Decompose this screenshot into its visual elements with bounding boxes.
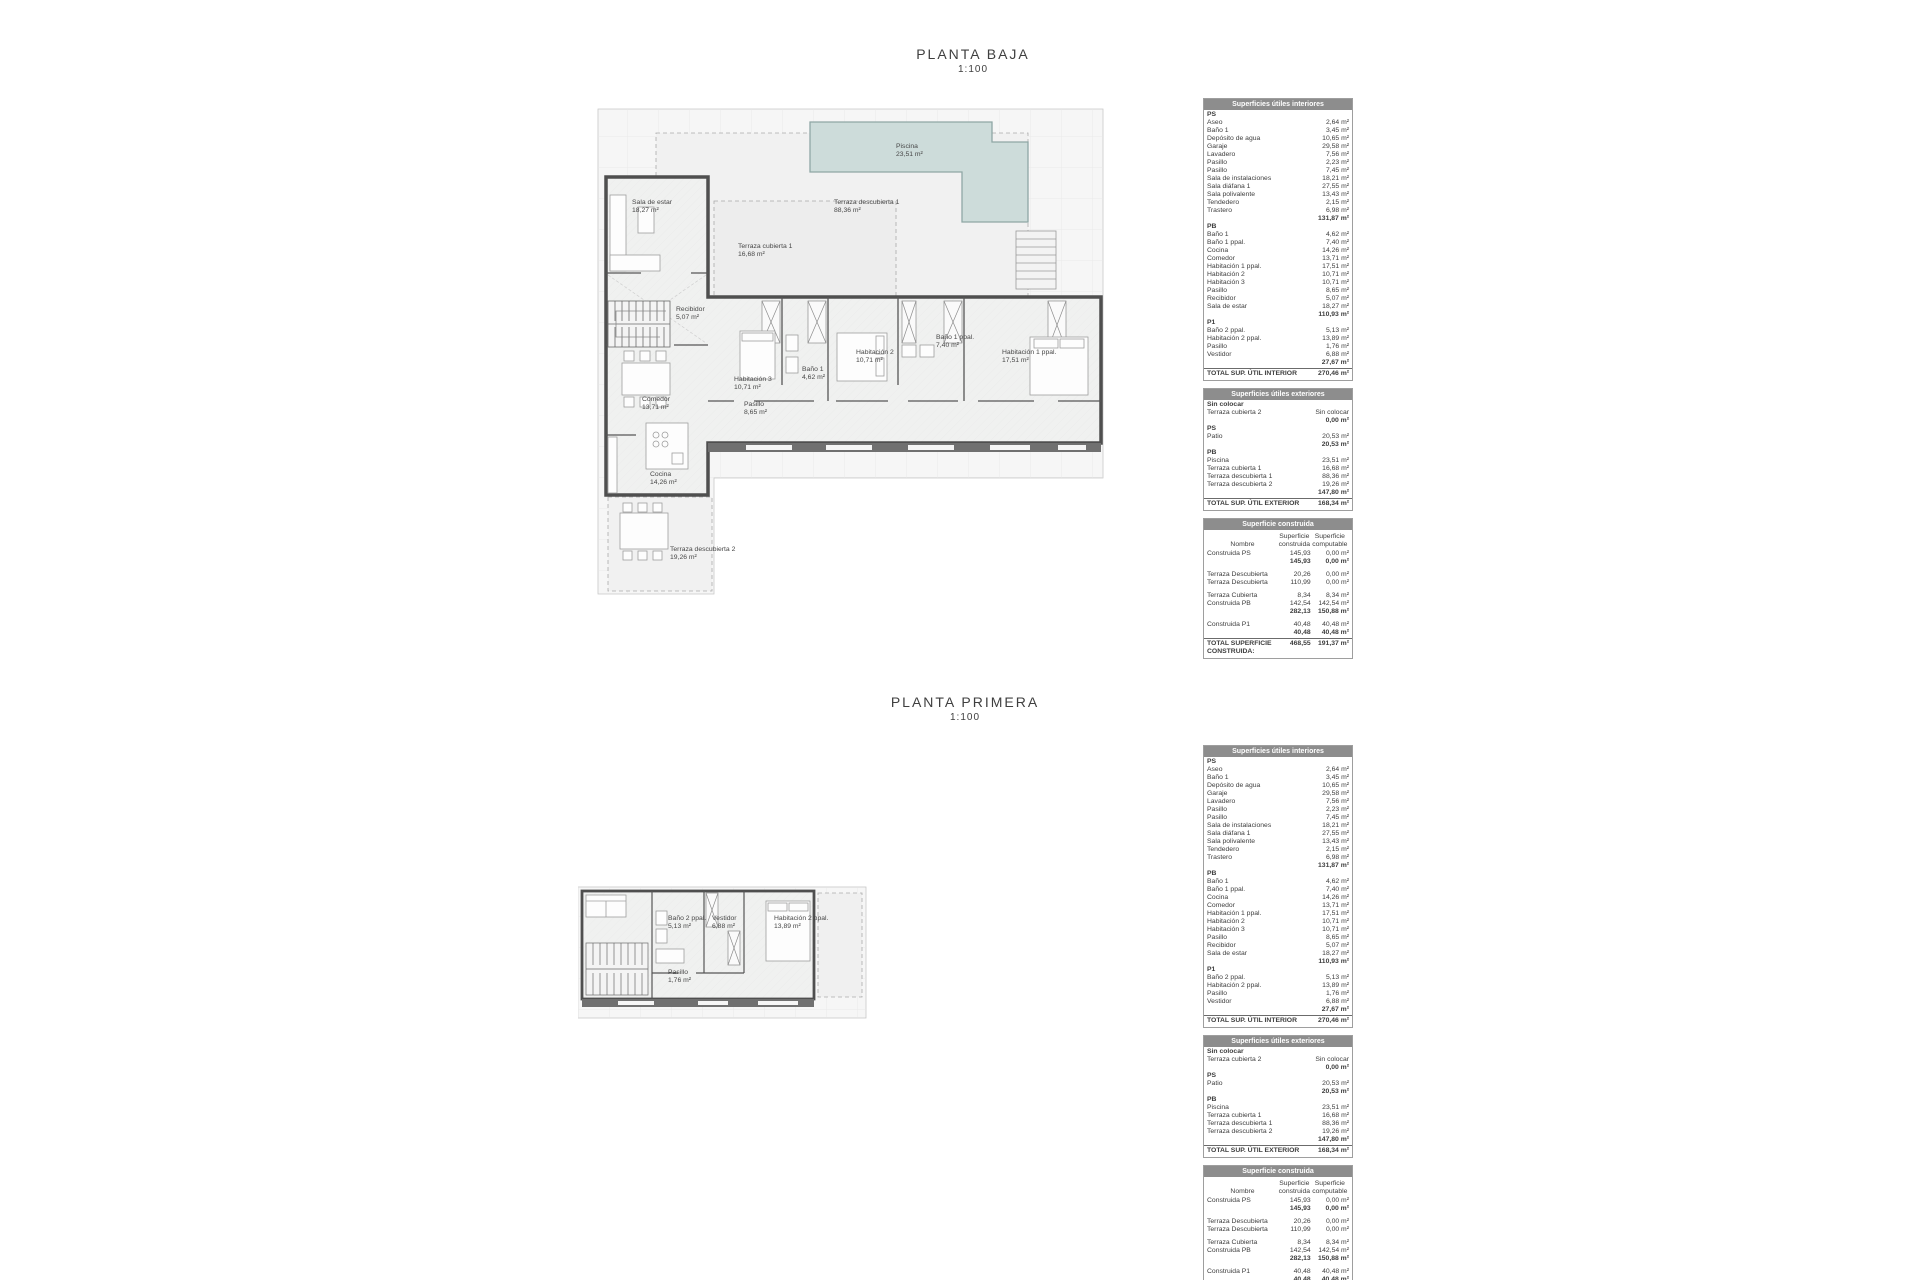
section-subtotal: 20,53 m² [1204,1088,1352,1096]
row-value: 2,15 m² [1326,199,1349,207]
table-row: Habitación 210,71 m² [1204,271,1352,279]
row-value: 10,65 m² [1322,782,1349,790]
table-row: Construida PS145,930,00 m² [1204,1197,1352,1205]
room-name: Cocina [650,471,677,479]
row-label: Tendedero [1207,199,1239,207]
row-value: 18,21 m² [1322,175,1349,183]
row-value: 17,51 m² [1322,263,1349,271]
row-value: 27,55 m² [1322,830,1349,838]
table-body: Sin colocarTerraza cubierta 2Sin colocar… [1204,1047,1352,1157]
room-area: 19,26 m² [670,554,735,562]
row-value: 20,53 m² [1322,1080,1349,1088]
table-row: Piscina23,51 m² [1204,1104,1352,1112]
row-value: 88,36 m² [1322,1120,1349,1128]
table-row: Terraza cubierta 2Sin colocar [1204,409,1352,417]
table-row: Terraza Descubierta20,260,00 m² [1204,571,1352,579]
section-header: PB [1204,223,1352,231]
scale-label: 1:100 [863,64,1083,75]
table-row: Sala polivalente13,43 m² [1204,191,1352,199]
cell-name [1207,1276,1278,1280]
table-row: Habitación 2 ppal.13,89 m² [1204,982,1352,990]
table-row: Pasillo7,45 m² [1204,167,1352,175]
row-value: 19,26 m² [1322,481,1349,489]
section-subtotal: 0,00 m² [1204,1064,1352,1072]
table-row: Baño 13,45 m² [1204,127,1352,135]
row-label: Sala de estar [1207,303,1247,311]
row-value: 18,21 m² [1322,822,1349,830]
cell-construida: 110,99 [1278,579,1311,587]
room-label: Comedor13,71 m² [642,396,670,411]
cell-name: Construida PB [1207,600,1278,608]
cell-construida: 8,34 [1278,592,1311,600]
cell-construida: 40,48 [1278,1268,1311,1276]
table-superficie-construida: Superficie construidaNombreSuperficie co… [1203,1165,1353,1280]
section-subtotal: 147,80 m² [1204,1136,1352,1144]
row-label: TOTAL SUP. ÚTIL EXTERIOR [1207,500,1299,508]
cell-name [1207,608,1278,616]
row-value: Sin colocar [1315,409,1349,417]
section-header: PB [1204,870,1352,878]
room-name: Terraza descubierta 1 [834,199,899,207]
table-body: NombreSuperficie construidaSuperficie co… [1204,530,1352,658]
cell-construida: 40,48 [1278,621,1311,629]
row-label: Piscina [1207,1104,1229,1112]
cell-computable: 0,00 m² [1311,579,1349,587]
table-row: Baño 13,45 m² [1204,774,1352,782]
table-row: Cocina14,26 m² [1204,894,1352,902]
table-total: TOTAL SUP. ÚTIL EXTERIOR168,34 m² [1204,1145,1352,1155]
row-label: Pasillo [1207,814,1227,822]
row-value: 6,98 m² [1326,854,1349,862]
row-value: 147,80 m² [1318,1136,1349,1144]
room-name: Habitación 1 ppal. [1002,349,1056,357]
section-subtotal: 27,67 m² [1204,359,1352,367]
row-label: Sala diáfana 1 [1207,830,1250,838]
cell-computable: Superficie computable [1311,533,1349,549]
table-row: Habitación 1 ppal.17,51 m² [1204,263,1352,271]
row-value: 0,00 m² [1326,417,1349,425]
table-row: Tendedero2,15 m² [1204,846,1352,854]
table-row: Construida P140,4840,48 m² [1204,621,1352,629]
row-label: Lavadero [1207,798,1235,806]
cell-computable: 0,00 m² [1311,550,1349,558]
room-label: Piscina23,51 m² [896,143,923,158]
room-label: Baño 14,62 m² [802,366,825,381]
room-label: Habitación 1 ppal.17,51 m² [1002,349,1056,364]
cell-construida: 282,13 [1278,1255,1311,1263]
row-value: 88,36 m² [1322,473,1349,481]
section-header: Sin colocar [1204,1048,1352,1056]
table-row: Depósito de agua10,65 m² [1204,135,1352,143]
row-label: Baño 1 [1207,774,1229,782]
table-title: Superficie construida [1204,1166,1352,1177]
row-label: Terraza cubierta 1 [1207,465,1261,473]
table-row: Habitación 2 ppal.13,89 m² [1204,335,1352,343]
row-label: TOTAL SUP. ÚTIL INTERIOR [1207,1017,1297,1025]
table-title: Superficie construida [1204,519,1352,530]
row-value: 23,51 m² [1322,457,1349,465]
row-value: 14,26 m² [1322,894,1349,902]
room-name: Terraza descubierta 2 [670,546,735,554]
room-label: Baño 2 ppal.5,13 m² [668,915,706,930]
row-label: Garaje [1207,790,1227,798]
row-label: Baño 1 ppal. [1207,239,1245,247]
room-area: 1,76 m² [668,977,691,985]
row-value: 270,46 m² [1318,1017,1349,1025]
cell-computable: 8,34 m² [1311,1239,1349,1247]
cell-name [1207,558,1278,566]
row-value: 168,34 m² [1318,1147,1349,1155]
row-label: Comedor [1207,255,1235,263]
row-label: Baño 1 [1207,231,1229,239]
section-subtotal: 110,93 m² [1204,311,1352,319]
row-value: 2,15 m² [1326,846,1349,854]
section-header: PB [1204,1096,1352,1104]
row-label: Sin colocar [1207,1048,1244,1056]
row-label: Baño 2 ppal. [1207,327,1245,335]
room-name: Sala de estar [632,199,672,207]
table-row: Sala de instalaciones18,21 m² [1204,822,1352,830]
cell-computable: 191,37 m² [1311,640,1349,656]
room-name: Habitación 2 [856,349,894,357]
row-value: 13,89 m² [1322,982,1349,990]
row-label: Habitación 2 [1207,271,1245,279]
table-row: Baño 2 ppal.5,13 m² [1204,327,1352,335]
table-row: Aseo2,64 m² [1204,119,1352,127]
table-row: Depósito de agua10,65 m² [1204,782,1352,790]
room-label: Habitación 310,71 m² [734,376,772,391]
row-label: Pasillo [1207,159,1227,167]
row-label: Trastero [1207,854,1232,862]
table-row: Construida PS145,930,00 m² [1204,550,1352,558]
table-row: Habitación 1 ppal.17,51 m² [1204,910,1352,918]
row-label: Habitación 2 ppal. [1207,335,1261,343]
row-value: 7,56 m² [1326,798,1349,806]
room-label: Terraza cubierta 116,68 m² [738,243,792,258]
cell-construida: 20,26 [1278,571,1311,579]
table-row: Construida PB142,54142,54 m² [1204,600,1352,608]
room-area: 17,51 m² [1002,357,1056,365]
table-total: TOTAL SUP. ÚTIL INTERIOR270,46 m² [1204,368,1352,378]
table-body: PSAseo2,64 m²Baño 13,45 m²Depósito de ag… [1204,757,1352,1027]
room-label: Cocina14,26 m² [650,471,677,486]
table-superficies-utiles-exteriores: Superficies útiles exterioresSin colocar… [1203,388,1353,511]
room-area: 10,71 m² [856,357,894,365]
row-value: 5,07 m² [1326,295,1349,303]
room-label: Sala de estar18,27 m² [632,199,672,214]
row-value: 20,53 m² [1322,441,1349,449]
row-value: 29,58 m² [1322,143,1349,151]
row-value: 3,45 m² [1326,774,1349,782]
row-label: Lavadero [1207,151,1235,159]
table-row: Pasillo2,23 m² [1204,806,1352,814]
row-label: Pasillo [1207,934,1227,942]
page-title: PLANTA BAJA [863,46,1083,62]
row-value: 7,40 m² [1326,239,1349,247]
row-value: 17,51 m² [1322,910,1349,918]
row-label: Pasillo [1207,167,1227,175]
cell-construida: 145,93 [1278,558,1311,566]
row-label: Patio [1207,433,1223,441]
table-row: Trastero6,98 m² [1204,854,1352,862]
room-label: Vestidor6,88 m² [712,915,737,930]
cell-computable: 142,54 m² [1311,600,1349,608]
cell-name: Construida P1 [1207,621,1278,629]
room-area: 14,26 m² [650,479,677,487]
row-value: 8,65 m² [1326,287,1349,295]
table-row: Patio20,53 m² [1204,1080,1352,1088]
cell-construida: 20,26 [1278,1218,1311,1226]
table-total: TOTAL SUPERFICIE CONSTRUIDA:468,55191,37… [1204,638,1352,656]
cell-construida: 110,99 [1278,1226,1311,1234]
section-header: PS [1204,111,1352,119]
room-label: Recibidor5,07 m² [676,306,705,321]
room-area: 5,07 m² [676,314,705,322]
room-area: 16,68 m² [738,251,792,259]
row-label: Pasillo [1207,287,1227,295]
cell-construida: 8,34 [1278,1239,1311,1247]
table-row: Garaje29,58 m² [1204,143,1352,151]
cell-computable: 40,48 m² [1311,621,1349,629]
row-value: 18,27 m² [1322,303,1349,311]
cell-name: Construida PS [1207,1197,1278,1205]
cell-name [1207,1205,1278,1213]
table-row: Vestidor6,88 m² [1204,998,1352,1006]
table-row: Garaje29,58 m² [1204,790,1352,798]
cell-name: Construida PB [1207,1247,1278,1255]
cell-construida: 145,93 [1278,550,1311,558]
row-label: Habitación 2 [1207,918,1245,926]
section-header: P1 [1204,319,1352,327]
row-value: 110,93 m² [1318,311,1349,319]
table-row: Patio20,53 m² [1204,433,1352,441]
row-value: 29,58 m² [1322,790,1349,798]
floor-plan-planta-baja: Piscina23,51 m²Terraza descubierta 188,3… [596,105,1105,600]
row-label: PS [1207,1072,1216,1080]
row-value: 27,55 m² [1322,183,1349,191]
cell-name: TOTAL SUPERFICIE CONSTRUIDA: [1207,640,1278,656]
table-row: Pasillo1,76 m² [1204,990,1352,998]
room-area: 13,89 m² [774,923,828,931]
room-label: Terraza descubierta 219,26 m² [670,546,735,561]
table-row: Terraza Cubierta8,348,34 m² [1204,592,1352,600]
floor-plan-planta-primera: Baño 2 ppal.5,13 m²Vestidor6,88 m²Habita… [578,885,868,1020]
row-label: Tendedero [1207,846,1239,854]
table-row: Sala de instalaciones18,21 m² [1204,175,1352,183]
row-value: 20,53 m² [1322,1088,1349,1096]
table-row: Recibidor5,07 m² [1204,942,1352,950]
cell-name: Terraza Cubierta [1207,592,1278,600]
group-subtotal: 282,13150,88 m² [1204,1255,1352,1263]
cell-computable: 0,00 m² [1311,1226,1349,1234]
table-row: Pasillo8,65 m² [1204,287,1352,295]
row-label: Depósito de agua [1207,782,1260,790]
cell-name: Terraza Descubierta [1207,571,1278,579]
table-row: Sala diáfana 127,55 m² [1204,183,1352,191]
row-label: Patio [1207,1080,1223,1088]
row-label: Terraza cubierta 2 [1207,1056,1261,1064]
row-label: PS [1207,758,1216,766]
cell-computable: 40,48 m² [1311,1268,1349,1276]
room-label: Pasillo8,65 m² [744,401,767,416]
cell-computable: 0,00 m² [1311,571,1349,579]
row-label: Terraza cubierta 1 [1207,1112,1261,1120]
section-subtotal: 110,93 m² [1204,958,1352,966]
row-label: Habitación 3 [1207,279,1245,287]
group-subtotal: 145,930,00 m² [1204,558,1352,566]
row-label: TOTAL SUP. ÚTIL INTERIOR [1207,370,1297,378]
row-label: Sin colocar [1207,401,1244,409]
row-label: Vestidor [1207,998,1232,1006]
room-area: 88,36 m² [834,207,899,215]
row-label: Depósito de agua [1207,135,1260,143]
row-value: 6,88 m² [1326,351,1349,359]
row-value: 7,45 m² [1326,167,1349,175]
table-superficies-utiles-exteriores: Superficies útiles exterioresSin colocar… [1203,1035,1353,1158]
column-headers: NombreSuperficie construidaSuperficie co… [1204,533,1352,549]
table-title: Superficies útiles exteriores [1204,1036,1352,1047]
row-label: PB [1207,870,1216,878]
row-value: 5,13 m² [1326,974,1349,982]
room-label: Habitación 210,71 m² [856,349,894,364]
drawing-sheet: PLANTA BAJA 1:100 [0,0,1920,1280]
room-name: Piscina [896,143,923,151]
row-label: Aseo [1207,119,1223,127]
table-row: Recibidor5,07 m² [1204,295,1352,303]
table-body: PSAseo2,64 m²Baño 13,45 m²Depósito de ag… [1204,110,1352,380]
row-label: Sala polivalente [1207,191,1255,199]
row-label: Habitación 1 ppal. [1207,263,1261,271]
cell-construida: 145,93 [1278,1197,1311,1205]
row-value: 10,71 m² [1322,918,1349,926]
cell-computable: 0,00 m² [1311,1197,1349,1205]
row-label: TOTAL SUP. ÚTIL EXTERIOR [1207,1147,1299,1155]
row-value: 110,93 m² [1318,958,1349,966]
table-row: Construida PB142,54142,54 m² [1204,1247,1352,1255]
row-value: 2,23 m² [1326,806,1349,814]
room-area: 4,62 m² [802,374,825,382]
row-label: Recibidor [1207,942,1236,950]
table-row: Comedor13,71 m² [1204,902,1352,910]
cell-name: Nombre [1207,1188,1278,1196]
section-subtotal: 20,53 m² [1204,441,1352,449]
row-label: Terraza descubierta 1 [1207,1120,1272,1128]
row-label: PB [1207,1096,1216,1104]
cell-construida: 145,93 [1278,1205,1311,1213]
room-name: Vestidor [712,915,737,923]
section-header: P1 [1204,966,1352,974]
row-label: Garaje [1207,143,1227,151]
table-row: Trastero6,98 m² [1204,207,1352,215]
room-name: Habitación 2 ppal. [774,915,828,923]
page-title: PLANTA PRIMERA [855,694,1075,710]
cell-computable: Superficie computable [1311,1180,1349,1196]
row-value: 14,26 m² [1322,247,1349,255]
room-area: 8,65 m² [744,409,767,417]
room-label: Terraza descubierta 188,36 m² [834,199,899,214]
section-header: PS [1204,1072,1352,1080]
row-label: Terraza descubierta 2 [1207,481,1272,489]
cell-name [1207,1255,1278,1263]
room-area: 18,27 m² [632,207,672,215]
cell-computable: 142,54 m² [1311,1247,1349,1255]
tables-block-planta-primera: Superficies útiles interioresPSAseo2,64 … [1203,745,1353,1280]
row-label: Sala de instalaciones [1207,175,1271,183]
table-row: Terraza descubierta 219,26 m² [1204,1128,1352,1136]
cell-name: Terraza Cubierta [1207,1239,1278,1247]
table-row: Habitación 310,71 m² [1204,279,1352,287]
row-label: Baño 1 ppal. [1207,886,1245,894]
row-value: 13,71 m² [1322,902,1349,910]
row-label: Cocina [1207,247,1228,255]
row-value: 3,45 m² [1326,127,1349,135]
table-body: Sin colocarTerraza cubierta 2Sin colocar… [1204,400,1352,510]
row-label: Sala de estar [1207,950,1247,958]
row-value: 6,98 m² [1326,207,1349,215]
row-label: Sala polivalente [1207,838,1255,846]
row-value: Sin colocar [1315,1056,1349,1064]
row-value: 131,87 m² [1318,862,1349,870]
room-area: 7,40 m² [936,342,974,350]
column-headers: NombreSuperficie construidaSuperficie co… [1204,1180,1352,1196]
table-row: Baño 14,62 m² [1204,878,1352,886]
section-header: PS [1204,758,1352,766]
row-value: 2,64 m² [1326,766,1349,774]
row-value: 13,43 m² [1322,838,1349,846]
cell-construida: 142,54 [1278,600,1311,608]
row-label: Habitación 3 [1207,926,1245,934]
table-row: Pasillo1,76 m² [1204,343,1352,351]
table-superficies-utiles-interiores: Superficies útiles interioresPSAseo2,64 … [1203,98,1353,381]
row-value: 23,51 m² [1322,1104,1349,1112]
cell-construida: 142,54 [1278,1247,1311,1255]
table-total: TOTAL SUP. ÚTIL INTERIOR270,46 m² [1204,1015,1352,1025]
row-value: 27,67 m² [1322,1006,1349,1014]
row-label: Sala diáfana 1 [1207,183,1250,191]
room-area: 10,71 m² [734,384,772,392]
table-row: Terraza descubierta 219,26 m² [1204,481,1352,489]
table-row: Terraza Descubierta110,990,00 m² [1204,1226,1352,1234]
cell-name: Construida PS [1207,550,1278,558]
table-row: Terraza Descubierta20,260,00 m² [1204,1218,1352,1226]
sheet-title-planta-primera: PLANTA PRIMERA 1:100 [855,694,1075,723]
table-row: Habitación 210,71 m² [1204,918,1352,926]
row-value: 10,65 m² [1322,135,1349,143]
table-row: Comedor13,71 m² [1204,255,1352,263]
room-name: Pasillo [744,401,767,409]
row-label: Habitación 1 ppal. [1207,910,1261,918]
room-label: Baño 1 ppal.7,40 m² [936,334,974,349]
table-row: Baño 1 ppal.7,40 m² [1204,886,1352,894]
room-labels-planta-primera: Baño 2 ppal.5,13 m²Vestidor6,88 m²Habita… [578,885,868,1020]
section-subtotal: 147,80 m² [1204,489,1352,497]
row-value: 13,43 m² [1322,191,1349,199]
room-label: Habitación 2 ppal.13,89 m² [774,915,828,930]
cell-construida: 282,13 [1278,608,1311,616]
row-value: 20,53 m² [1322,433,1349,441]
table-superficie-construida: Superficie construidaNombreSuperficie co… [1203,518,1353,659]
room-area: 23,51 m² [896,151,923,159]
table-row: Baño 2 ppal.5,13 m² [1204,974,1352,982]
cell-computable: 0,00 m² [1311,1218,1349,1226]
row-label: Terraza descubierta 2 [1207,1128,1272,1136]
table-row: Tendedero2,15 m² [1204,199,1352,207]
row-label: Baño 1 [1207,878,1229,886]
row-label: Trastero [1207,207,1232,215]
table-title: Superficies útiles interiores [1204,746,1352,757]
table-title: Superficies útiles exteriores [1204,389,1352,400]
row-value: 13,89 m² [1322,335,1349,343]
